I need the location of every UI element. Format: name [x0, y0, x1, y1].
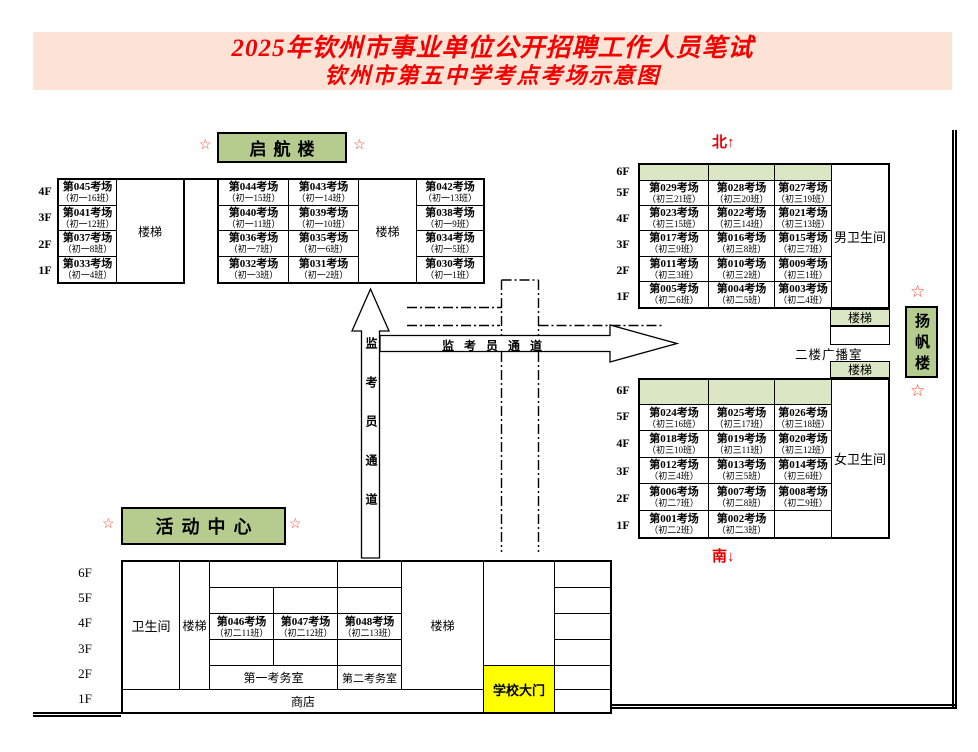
room-number: 第036考场	[229, 232, 279, 244]
empty-cell	[709, 380, 775, 405]
stairs-cell: 楼梯	[180, 562, 210, 690]
room-class: （初一7班）	[229, 244, 279, 254]
room-class: （初三8班）	[717, 244, 767, 254]
stairs-cell: 楼梯	[359, 180, 417, 282]
floor-label: 2F	[72, 661, 98, 686]
floor-label: 2F	[34, 231, 56, 258]
floor-label: 1F	[34, 258, 56, 285]
toilet-cell: 卫生间	[123, 562, 180, 690]
room-cell: 第001考场（初二2班）	[640, 511, 709, 537]
room-number: 第002考场	[717, 513, 767, 525]
room-number: 第044考场	[229, 181, 279, 193]
floor-label: 3F	[34, 205, 56, 232]
floor-label: 1F	[72, 687, 98, 712]
room-cell: 第009考场（初三1班）	[775, 257, 832, 282]
room-cell: 第029考场（初三21班）	[640, 181, 709, 206]
floor-label: 3F	[72, 636, 98, 661]
room-class: （初三9班）	[649, 244, 699, 254]
room-cell: 第034考场（初一5班）	[417, 231, 483, 257]
room-number: 第035考场	[299, 232, 349, 244]
room-class: （初一12班）	[60, 219, 114, 229]
building-label-yangfan: 扬帆楼	[905, 306, 938, 378]
room-class: （初三21班）	[647, 194, 701, 204]
room-cell: 第022考场（初三14班）	[709, 206, 775, 231]
room-class: （初一13班）	[423, 193, 477, 203]
empty-cell	[338, 640, 402, 666]
room-number: 第021考场	[778, 207, 828, 219]
empty-cell	[338, 562, 402, 588]
room-number: 第015考场	[778, 232, 828, 244]
room-number: 第039考场	[299, 207, 349, 219]
room-class: （初三1班）	[778, 270, 828, 280]
empty-cell	[830, 326, 890, 345]
room-number: 第043考场	[299, 181, 349, 193]
room-number: 第016考场	[717, 232, 767, 244]
floor-label: 4F	[34, 178, 56, 205]
floor-label: 4F	[610, 430, 636, 457]
floor-label: 5F	[610, 403, 636, 430]
room-class: （初二9班）	[778, 498, 828, 508]
empty-cell	[210, 588, 274, 614]
room-cell: 第039考场（初一10班）	[289, 206, 359, 232]
room-number: 第033考场	[63, 258, 113, 270]
room-cell: 第015考场（初三7班）	[775, 231, 832, 256]
room-number: 第022考场	[717, 207, 767, 219]
floor-label: 2F	[610, 485, 636, 512]
room-cell: 第047考场（初二12班）	[274, 614, 338, 640]
empty-cell	[555, 640, 610, 666]
room-cell: 第027考场（初三19班）	[775, 181, 832, 206]
room-number: 第048考场	[345, 616, 395, 628]
qihang-left-table: 楼梯 第045考场（初一16班） 第041考场（初一12班） 第037考场（初一…	[57, 178, 185, 284]
room-class: （初三6班）	[778, 471, 828, 481]
stairs-cell: 楼梯	[402, 562, 484, 690]
shop-cell: 商店	[123, 690, 484, 712]
empty-cell	[555, 690, 610, 712]
supervisor-corridor-vertical-label: 监考员通道	[363, 337, 380, 532]
empty-cell	[555, 562, 610, 588]
empty-cell	[210, 640, 274, 666]
room-number: 第001考场	[649, 513, 699, 525]
empty-cell	[274, 588, 338, 614]
room-class: （初三20班）	[714, 194, 768, 204]
floor-label: 5F	[72, 585, 98, 610]
room-class: （初二6班）	[649, 295, 699, 305]
room-cell: 第004考场（初二5班）	[709, 282, 775, 307]
room-number: 第037考场	[63, 232, 113, 244]
room-number: 第047考场	[281, 616, 331, 628]
room-cell: 第017考场（初三9班）	[640, 231, 709, 256]
room-number: 第005考场	[649, 283, 699, 295]
room-class: （初一9班）	[425, 219, 475, 229]
room-class: （初三15班）	[647, 219, 701, 229]
room-class: （初一16班）	[60, 193, 114, 203]
room-cell: 第032考场（初一3班）	[219, 257, 289, 283]
room-cell: 第005考场（初二6班）	[640, 282, 709, 307]
room-class: （初二7班）	[649, 498, 699, 508]
room-class: （初三3班）	[649, 270, 699, 280]
room-cell: 第003考场（初二4班）	[775, 282, 832, 307]
room-cell: 第035考场（初一6班）	[289, 231, 359, 257]
room-class: （初二4班）	[778, 295, 828, 305]
room-class: （初二3班）	[717, 525, 767, 535]
star-icon: ☆	[910, 283, 925, 300]
room-cell: 第006考场（初二7班）	[640, 484, 709, 510]
empty-cell	[775, 380, 832, 405]
room-number: 第029考场	[649, 182, 699, 194]
floor-label: 1F	[610, 512, 636, 539]
room-number: 第018考场	[649, 433, 699, 445]
compass-south: 南↓	[712, 545, 735, 566]
room-number: 第032考场	[229, 258, 279, 270]
room-number: 第041考场	[63, 207, 113, 219]
empty-cell	[775, 165, 832, 181]
exam-office-1-cell: 第一考务室	[210, 666, 338, 690]
building-label-huodong: 活动中心	[121, 507, 286, 545]
empty-cell	[338, 588, 402, 614]
floor-label: 6F	[72, 560, 98, 585]
floor-label: 2F	[610, 257, 636, 283]
room-number: 第003考场	[778, 283, 828, 295]
room-cell: 第046考场（初二11班）	[210, 614, 274, 640]
room-cell: 第018考场（初三10班）	[640, 431, 709, 457]
room-cell: 第030考场（初一1班）	[417, 257, 483, 283]
room-cell: 第037考场（初一8班）	[59, 231, 117, 257]
room-class: （初一6班）	[299, 244, 349, 254]
room-class: （初三14班）	[714, 219, 768, 229]
room-cell: 第025考场（初三17班）	[709, 405, 775, 431]
room-cell: 第007考场（初二8班）	[709, 484, 775, 510]
floor-label: 6F	[610, 163, 636, 179]
room-number: 第046考场	[217, 616, 267, 628]
room-cell: 第028考场（初三20班）	[709, 181, 775, 206]
room-number: 第010考场	[717, 258, 767, 270]
room-cell: 第038考场（初一9班）	[417, 206, 483, 232]
room-class: （初三16班）	[647, 419, 701, 429]
floor-label: 4F	[610, 205, 636, 231]
supervisor-corridor-horizontal-label: 监考员通道	[392, 337, 602, 354]
exam-site-map: 2025年钦州市事业单位公开招聘工作人员笔试 钦州市第五中学考点考场示意图 监考…	[0, 0, 978, 752]
room-cell: 第036考场（初一7班）	[219, 231, 289, 257]
room-class: （初三5班）	[717, 471, 767, 481]
floor-labels-yangfan-south: 6F 5F 4F 3F 2F 1F	[610, 378, 636, 539]
room-cell: 第048考场（初二13班）	[338, 614, 402, 640]
school-gate-cell: 学校大门	[484, 666, 555, 712]
room-cell: 第024考场（初三16班）	[640, 405, 709, 431]
room-number: 第012考场	[649, 459, 699, 471]
room-number: 第019考场	[717, 433, 767, 445]
room-number: 第034考场	[425, 232, 475, 244]
room-number: 第024考场	[649, 407, 699, 419]
room-cell: 第019考场（初三11班）	[709, 431, 775, 457]
stairs-cell: 楼梯	[830, 309, 890, 326]
room-number: 第026考场	[778, 407, 828, 419]
male-toilet-cell: 男卫生间	[832, 165, 888, 307]
room-cell: 第010考场（初三2班）	[709, 257, 775, 282]
room-class: （初二8班）	[717, 498, 767, 508]
room-number: 第014考场	[778, 459, 828, 471]
room-number: 第025考场	[717, 407, 767, 419]
room-class: （初三12班）	[776, 445, 830, 455]
room-cell: 第008考场（初二9班）	[775, 484, 832, 510]
yangfan-south-table: 女卫生间 第024考场（初三16班） 第025考场（初三17班） 第026考场（…	[638, 378, 890, 539]
empty-cell	[555, 588, 610, 614]
stairs-cell: 楼梯	[117, 180, 183, 282]
room-class: （初一10班）	[296, 219, 350, 229]
room-class: （初二5班）	[717, 295, 767, 305]
room-class: （初三4班）	[649, 471, 699, 481]
room-number: 第009考场	[778, 258, 828, 270]
room-number: 第038考场	[425, 207, 475, 219]
room-number: 第031考场	[299, 258, 349, 270]
star-icon: ☆	[910, 382, 925, 399]
room-cell: 第013考场（初三5班）	[709, 458, 775, 484]
room-cell: 第026考场（初三18班）	[775, 405, 832, 431]
room-class: （初二12班）	[278, 628, 332, 638]
room-cell: 第040考场（初一11班）	[219, 206, 289, 232]
floor-label: 6F	[610, 378, 636, 403]
room-cell: 第031考场（初一2班）	[289, 257, 359, 283]
room-class: （初三17班）	[714, 419, 768, 429]
empty-cell	[210, 562, 338, 588]
star-icon: ☆	[353, 139, 366, 153]
room-cell: 第042考场（初一13班）	[417, 180, 483, 206]
yangfan-north-table: 男卫生间 第029考场（初三21班） 第028考场（初三20班） 第027考场（…	[638, 163, 890, 309]
room-class: （初一1班）	[425, 270, 475, 280]
compass-north: 北↑	[712, 131, 735, 152]
floor-label: 4F	[72, 611, 98, 636]
female-toilet-cell: 女卫生间	[832, 380, 888, 537]
empty-cell	[640, 165, 709, 181]
floor-label: 3F	[610, 457, 636, 484]
building-label-qihang: 启航楼	[217, 132, 347, 163]
room-cell: 第021考场（初三13班）	[775, 206, 832, 231]
empty-cell	[484, 562, 555, 666]
room-cell: 第020考场（初三12班）	[775, 431, 832, 457]
empty-cell	[555, 666, 610, 690]
empty-cell	[709, 165, 775, 181]
room-class: （初三13班）	[776, 219, 830, 229]
qihang-middle-table: 楼梯 第044考场（初一15班） 第043考场（初一14班） 第042考场（初一…	[217, 178, 485, 284]
room-class: （初一11班）	[227, 219, 281, 229]
room-number: 第023考场	[649, 207, 699, 219]
room-number: 第008考场	[778, 486, 828, 498]
room-number: 第020考场	[778, 433, 828, 445]
floor-label: 5F	[610, 179, 636, 205]
room-class: （初三18班）	[776, 419, 830, 429]
room-cell: 第016考场（初三8班）	[709, 231, 775, 256]
room-number: 第004考场	[717, 283, 767, 295]
room-number: 第040考场	[229, 207, 279, 219]
room-class: （初二13班）	[342, 628, 396, 638]
room-number: 第030考场	[425, 258, 475, 270]
room-cell: 第011考场（初三3班）	[640, 257, 709, 282]
floor-labels-qihang-left: 4F 3F 2F 1F	[34, 178, 56, 284]
room-class: （初三10班）	[647, 445, 701, 455]
floor-labels-huodong: 6F 5F 4F 3F 2F 1F	[72, 560, 98, 712]
star-icon: ☆	[289, 518, 302, 532]
room-number: 第013考场	[717, 459, 767, 471]
room-cell: 第014考场（初三6班）	[775, 458, 832, 484]
room-class: （初三2班）	[717, 270, 767, 280]
room-number: 第006考场	[649, 486, 699, 498]
room-class: （初三19班）	[776, 194, 830, 204]
exam-office-2-cell: 第二考务室	[338, 666, 402, 690]
floor-label: 1F	[610, 283, 636, 309]
room-cell: 第043考场（初一14班）	[289, 180, 359, 206]
room-class: （初一5班）	[425, 244, 475, 254]
room-class: （初三7班）	[778, 244, 828, 254]
room-class: （初一15班）	[226, 193, 280, 203]
room-cell: 第002考场（初二3班）	[709, 511, 775, 537]
empty-cell	[640, 380, 709, 405]
room-cell: 第023考场（初三15班）	[640, 206, 709, 231]
room-number: 第017考场	[649, 232, 699, 244]
empty-cell	[274, 640, 338, 666]
stairs-cell: 楼梯	[830, 361, 890, 378]
floor-label: 3F	[610, 231, 636, 257]
empty-cell	[775, 511, 832, 537]
room-class: （初三11班）	[715, 445, 769, 455]
star-icon: ☆	[102, 518, 115, 532]
room-cell: 第045考场（初一16班）	[59, 180, 117, 206]
room-cell: 第044考场（初一15班）	[219, 180, 289, 206]
room-class: （初一4班）	[63, 270, 113, 280]
room-class: （初一14班）	[296, 193, 350, 203]
room-class: （初二2班）	[649, 525, 699, 535]
floor-labels-yangfan-north: 6F 5F 4F 3F 2F 1F	[610, 163, 636, 309]
star-icon: ☆	[199, 139, 212, 153]
room-number: 第027考场	[778, 182, 828, 194]
room-number: 第042考场	[425, 181, 475, 193]
room-class: （初一3班）	[229, 270, 279, 280]
room-number: 第045考场	[63, 181, 113, 193]
empty-cell	[555, 614, 610, 640]
room-number: 第011考场	[650, 258, 699, 270]
huodong-table: 卫生间 楼梯 第046考场（初二11班） 第047考场（初二12班） 第048考…	[121, 560, 612, 714]
room-class: （初一8班）	[63, 244, 113, 254]
room-number: 第028考场	[717, 182, 767, 194]
room-class: （初二11班）	[215, 628, 269, 638]
room-number: 第007考场	[717, 486, 767, 498]
room-cell: 第012考场（初三4班）	[640, 458, 709, 484]
room-class: （初一2班）	[299, 270, 349, 280]
room-cell: 第033考场（初一4班）	[59, 257, 117, 283]
room-cell: 第041考场（初一12班）	[59, 206, 117, 232]
